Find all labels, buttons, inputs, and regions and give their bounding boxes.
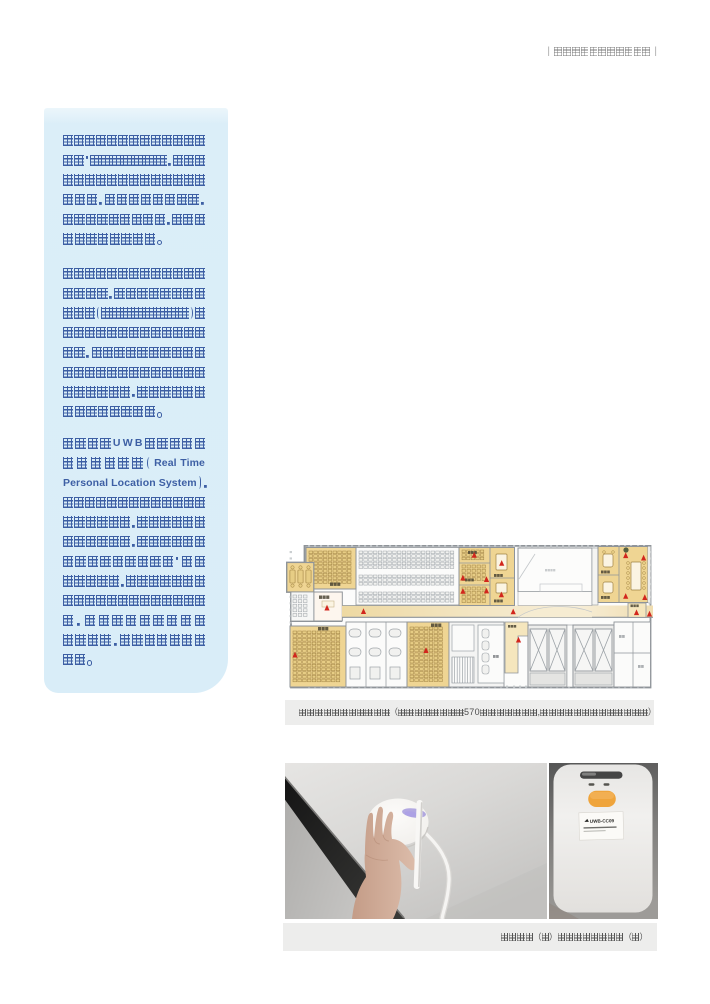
svg-text:UWB-CC09: UWB-CC09 xyxy=(590,818,615,824)
